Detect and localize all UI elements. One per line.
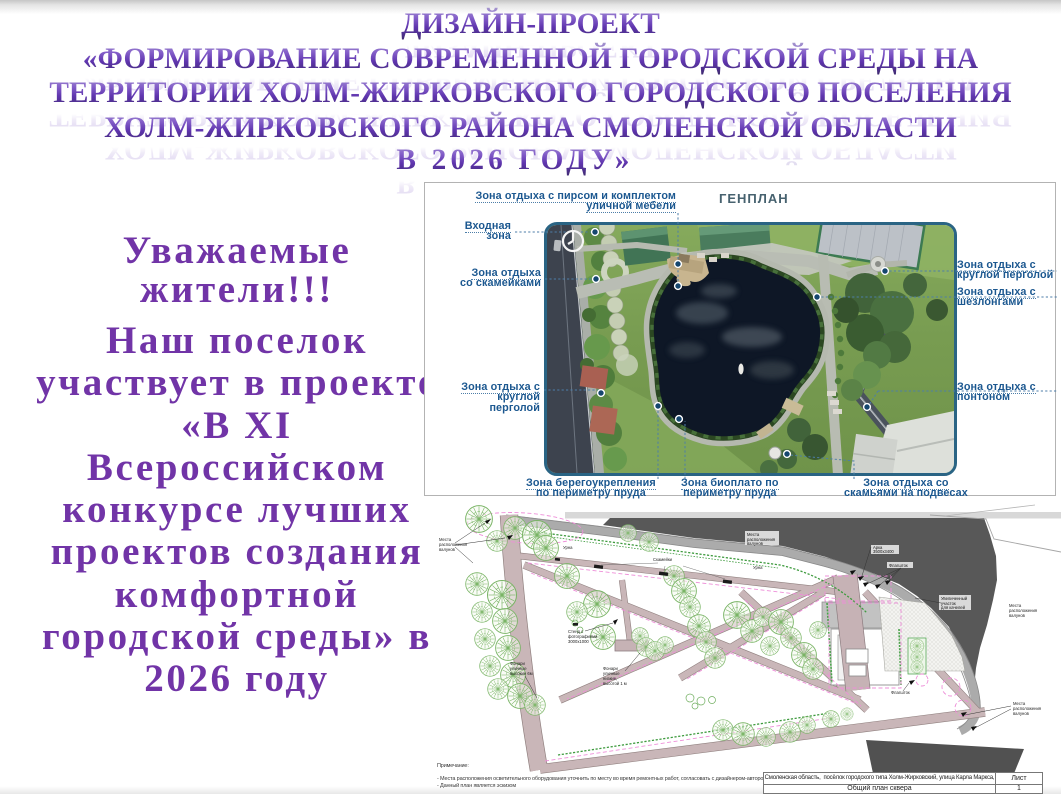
svg-text:для качелей: для качелей xyxy=(941,605,966,610)
svg-text:Флагшток: Флагшток xyxy=(891,690,910,695)
svg-text:3000х1000: 3000х1000 xyxy=(568,639,589,644)
svg-text:валунов: валунов xyxy=(1009,613,1026,618)
svg-text:валунов: валунов xyxy=(1013,711,1030,716)
svg-text:высотой 1 м: высотой 1 м xyxy=(603,681,627,686)
svg-text:Скамейки: Скамейки xyxy=(653,557,673,562)
svg-text:Флагшток: Флагшток xyxy=(889,563,908,568)
svg-text:высокие 6м: высокие 6м xyxy=(510,671,533,676)
svg-text:3500х3400: 3500х3400 xyxy=(873,549,894,554)
svg-text:Урна: Урна xyxy=(563,545,573,550)
svg-text:валунов: валунов xyxy=(747,541,764,546)
svg-text:валунов: валунов xyxy=(439,547,456,552)
svg-text:Урна: Урна xyxy=(753,565,763,570)
